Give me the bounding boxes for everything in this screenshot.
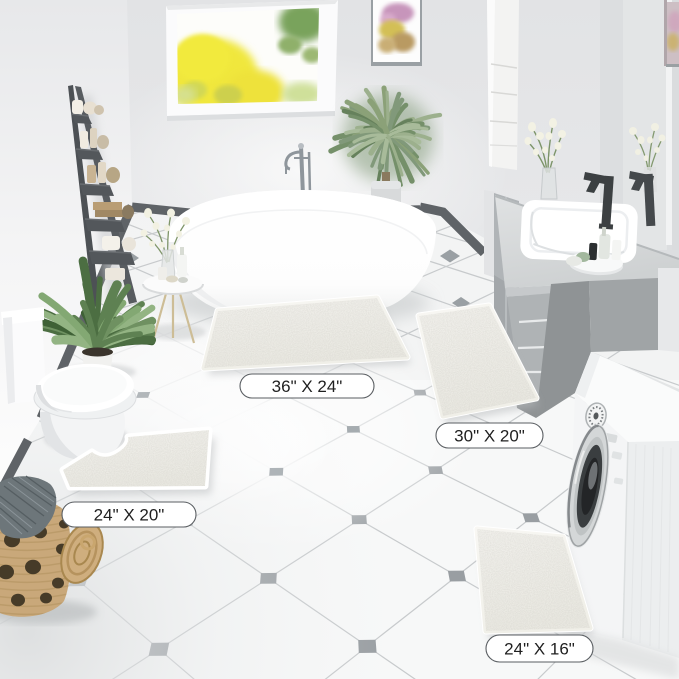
svg-text:30" X 20": 30" X 20" bbox=[454, 426, 525, 445]
svg-text:24" X 16": 24" X 16" bbox=[504, 639, 575, 658]
svg-text:36" X 24": 36" X 24" bbox=[272, 377, 343, 396]
svg-text:24" X 20": 24" X 20" bbox=[94, 505, 165, 524]
